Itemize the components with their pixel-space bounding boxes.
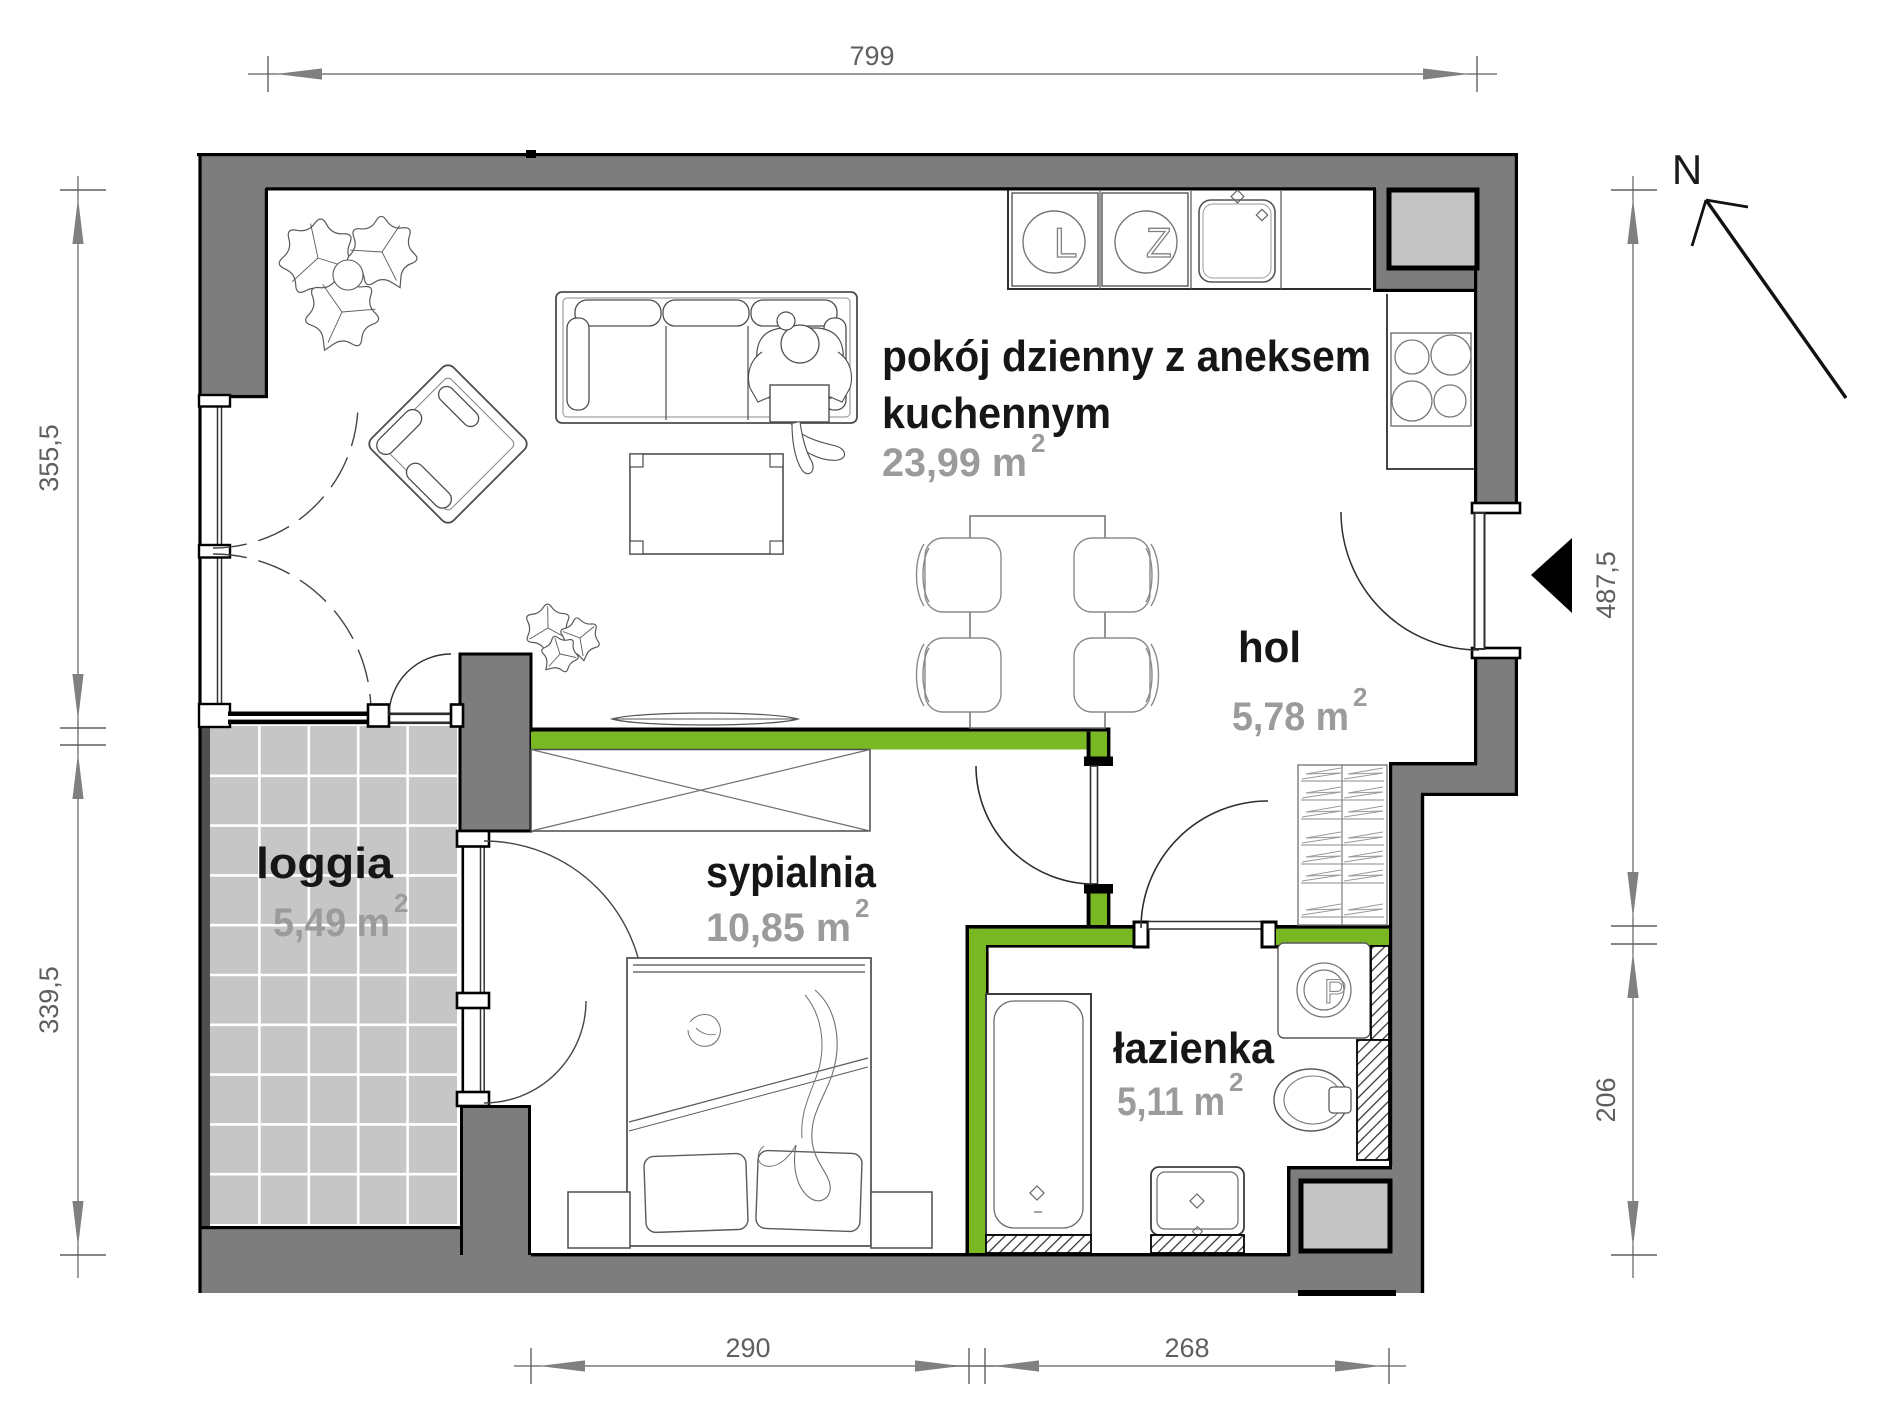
svg-text:268: 268 bbox=[1164, 1333, 1209, 1363]
svg-text:łazienka: łazienka bbox=[1113, 1024, 1274, 1073]
svg-text:loggia: loggia bbox=[256, 839, 394, 888]
svg-text:Z: Z bbox=[1146, 219, 1172, 266]
svg-text:5,11 m: 5,11 m bbox=[1117, 1080, 1225, 1124]
svg-text:2: 2 bbox=[855, 893, 869, 923]
svg-text:206: 206 bbox=[1591, 1077, 1621, 1122]
svg-text:10,85 m: 10,85 m bbox=[706, 906, 851, 950]
svg-text:P: P bbox=[1324, 973, 1347, 1011]
svg-text:sypialnia: sypialnia bbox=[706, 848, 876, 897]
svg-text:290: 290 bbox=[725, 1333, 770, 1363]
svg-text:hol: hol bbox=[1238, 623, 1301, 672]
svg-text:2: 2 bbox=[394, 888, 408, 918]
svg-text:2: 2 bbox=[1353, 682, 1367, 712]
svg-text:L: L bbox=[1054, 219, 1077, 266]
svg-text:kuchennym: kuchennym bbox=[882, 389, 1111, 438]
svg-text:2: 2 bbox=[1031, 428, 1045, 458]
svg-text:pokój dzienny z aneksem: pokój dzienny z aneksem bbox=[882, 332, 1371, 381]
svg-text:799: 799 bbox=[849, 41, 894, 71]
svg-text:5,49 m: 5,49 m bbox=[273, 901, 390, 945]
svg-text:5,78 m: 5,78 m bbox=[1232, 695, 1349, 739]
svg-text:23,99 m: 23,99 m bbox=[882, 441, 1027, 485]
svg-text:487,5: 487,5 bbox=[1591, 551, 1621, 619]
svg-text:2: 2 bbox=[1229, 1067, 1243, 1097]
svg-text:N: N bbox=[1672, 146, 1702, 193]
svg-text:339,5: 339,5 bbox=[34, 966, 64, 1034]
svg-text:355,5: 355,5 bbox=[34, 424, 64, 492]
